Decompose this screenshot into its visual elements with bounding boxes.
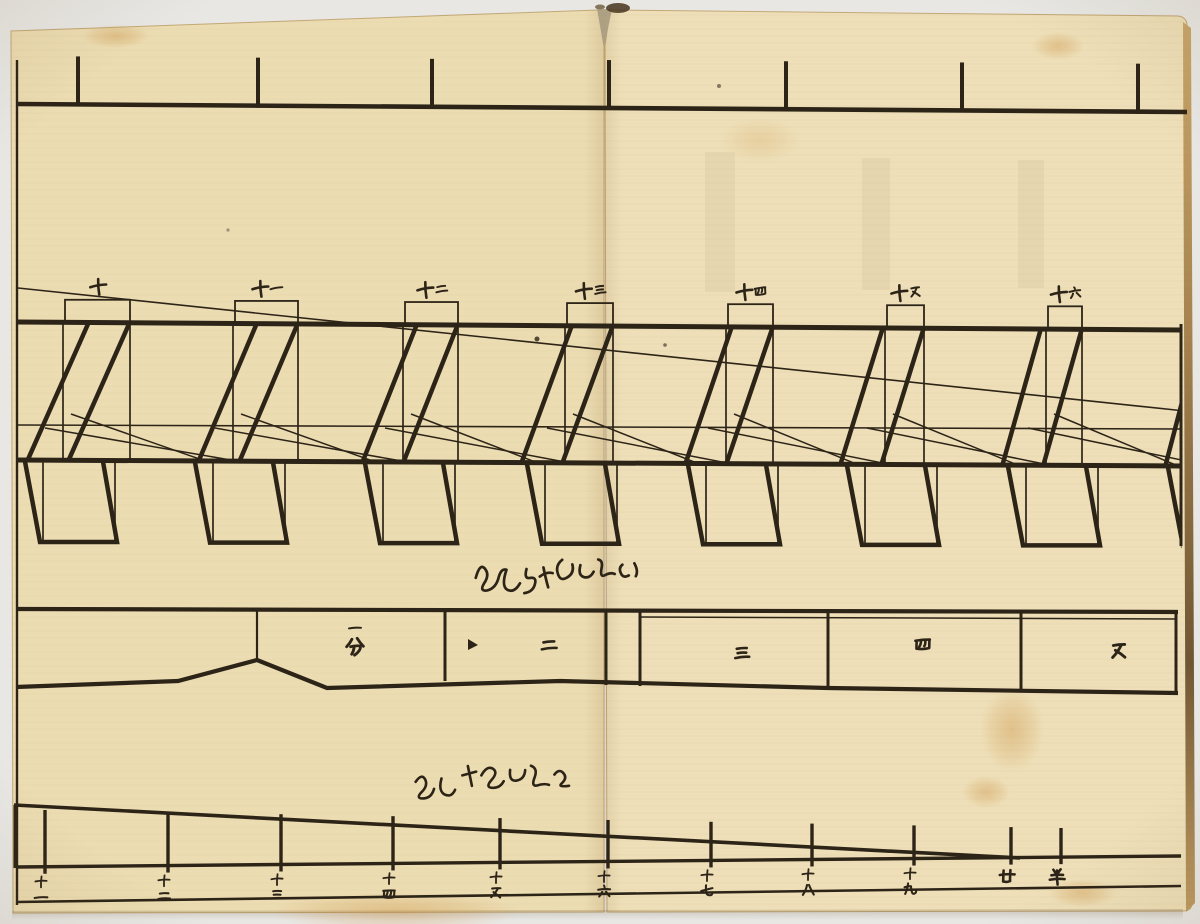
vignette-overlay (0, 0, 1200, 924)
scanned-book-spread (0, 0, 1200, 924)
diagram-canvas (0, 0, 1200, 924)
